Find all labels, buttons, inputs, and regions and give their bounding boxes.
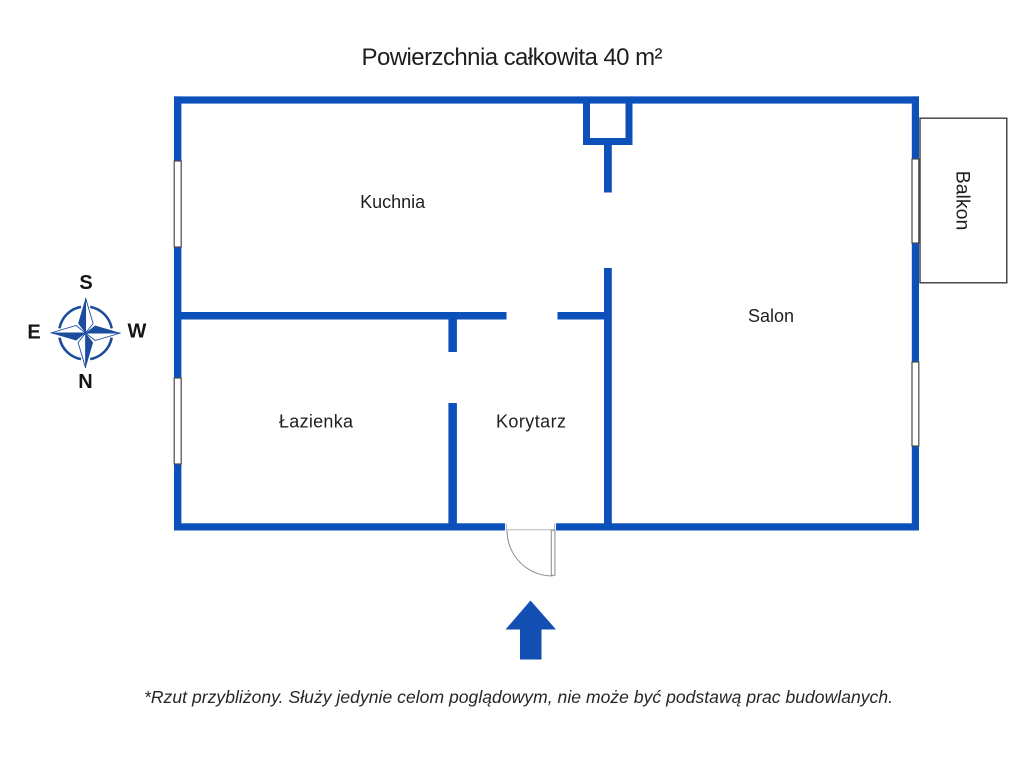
svg-text:*Rzut przybliżony. Służy jedyn: *Rzut przybliżony. Służy jedynie celom p… xyxy=(144,687,893,707)
svg-text:Balkon: Balkon xyxy=(952,171,974,231)
svg-text:W: W xyxy=(128,321,147,343)
svg-text:E: E xyxy=(27,321,40,343)
svg-text:Powierzchnia całkowita 40 m²: Powierzchnia całkowita 40 m² xyxy=(362,44,663,71)
svg-text:Kuchnia: Kuchnia xyxy=(360,192,426,212)
svg-text:S: S xyxy=(79,272,92,294)
svg-text:Łazienka: Łazienka xyxy=(279,411,354,431)
svg-text:Salon: Salon xyxy=(748,306,794,326)
svg-text:Korytarz: Korytarz xyxy=(496,411,566,431)
svg-text:N: N xyxy=(78,371,92,393)
